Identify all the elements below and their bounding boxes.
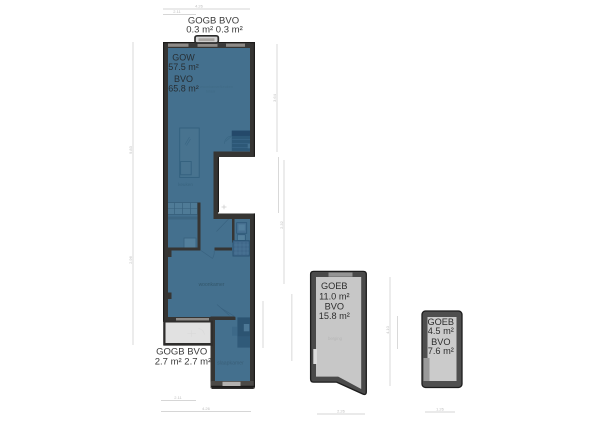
- svg-text:2.26: 2.26: [337, 409, 346, 414]
- svg-text:57.5 m²: 57.5 m²: [168, 62, 199, 72]
- svg-text:2.11: 2.11: [173, 9, 181, 14]
- svg-text:7.6 m²: 7.6 m²: [428, 346, 454, 356]
- svg-text:1.26: 1.26: [436, 407, 445, 412]
- svg-text:woonkamer: woonkamer: [199, 282, 225, 288]
- svg-text:9.83: 9.83: [128, 145, 133, 154]
- svg-text:2.32: 2.32: [279, 220, 284, 229]
- svg-text:2.96: 2.96: [128, 255, 133, 264]
- svg-text:slaapkamer: slaapkamer: [217, 361, 244, 367]
- svg-text:totaal: totaal: [206, 90, 215, 94]
- svg-text:2.7 m² 2.7 m²: 2.7 m² 2.7 m²: [155, 357, 212, 368]
- svg-text:11.0 m²: 11.0 m²: [319, 291, 349, 301]
- svg-text:woonkamer/keuken: woonkamer/keuken: [200, 85, 233, 89]
- svg-text:4.10: 4.10: [385, 325, 390, 334]
- svg-text:65.8 m²: 65.8 m²: [168, 83, 199, 93]
- svg-text:4.5 m²: 4.5 m²: [428, 326, 454, 336]
- svg-text:GOEB: GOEB: [321, 281, 348, 291]
- svg-text:4.26: 4.26: [202, 406, 211, 411]
- svg-text:2.11: 2.11: [174, 395, 182, 400]
- svg-text:4.26: 4.26: [195, 4, 204, 9]
- svg-text:15.8 m²: 15.8 m²: [319, 311, 350, 321]
- svg-text:0.3 m² 0.3 m²: 0.3 m² 0.3 m²: [186, 24, 243, 35]
- svg-text:berging: berging: [328, 336, 343, 341]
- svg-text:keuken: keuken: [178, 182, 193, 187]
- svg-text:3.64: 3.64: [272, 93, 277, 102]
